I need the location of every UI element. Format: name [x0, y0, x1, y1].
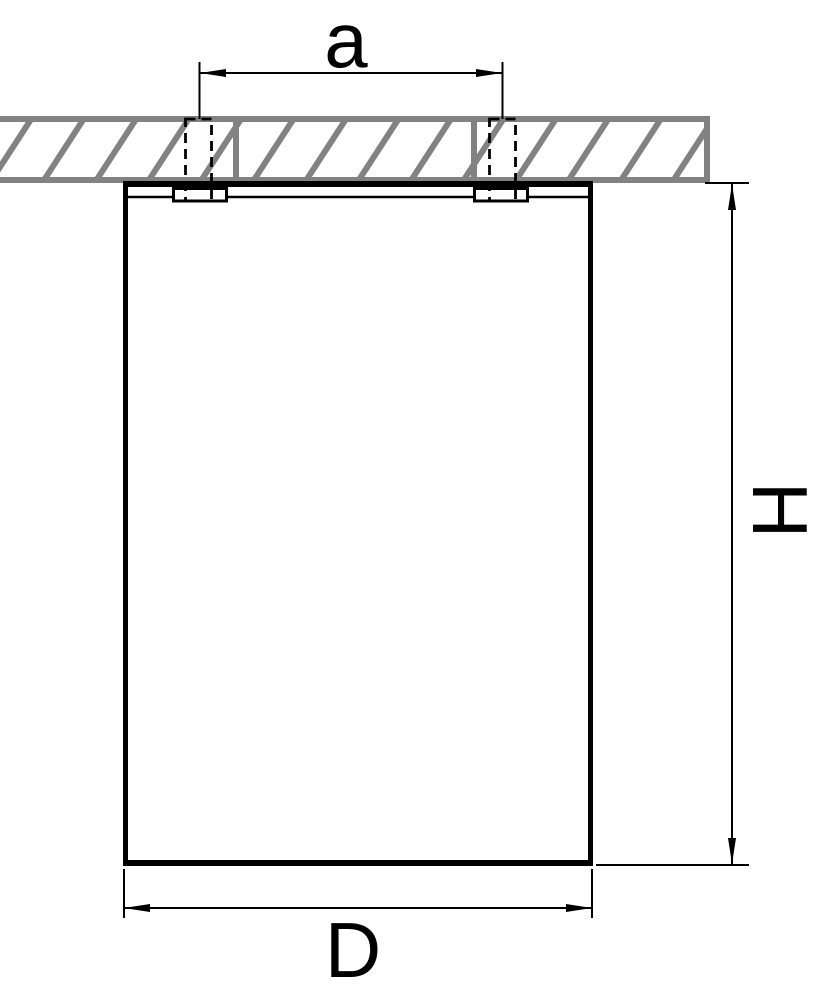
body-right-wall — [588, 181, 593, 866]
dimension-a: a — [200, 0, 503, 119]
dim-a-label: a — [324, 0, 368, 84]
ceiling-top-border — [0, 116, 710, 122]
dim-d-arrow-left — [124, 904, 150, 912]
dim-d-arrow-right — [566, 904, 592, 912]
luminaire-body — [123, 181, 593, 866]
dim-a-arrow-left — [200, 69, 226, 77]
luminaire-dimension-drawing: a H D — [0, 0, 816, 1000]
body-top-plate — [123, 181, 593, 187]
ceiling-divider-left — [233, 116, 239, 183]
ceiling-divider-right — [471, 116, 477, 183]
dim-h-label: H — [736, 482, 816, 538]
ceiling-section — [0, 116, 710, 183]
dim-d-label: D — [325, 906, 381, 994]
ceiling-hatch-area — [0, 122, 710, 177]
dim-h-arrow-top — [728, 184, 736, 210]
mounting-tab-left — [174, 189, 227, 202]
dimension-h: H — [596, 183, 816, 865]
body-interior — [123, 181, 593, 866]
body-bottom-edge — [123, 860, 593, 866]
mounting-tab-right — [475, 189, 528, 202]
dimension-drawing-page: a H D — [0, 0, 816, 1000]
ceiling-right-end-cap — [704, 116, 710, 183]
dim-h-arrow-bottom — [728, 838, 736, 864]
dimension-d: D — [124, 869, 592, 994]
dim-a-arrow-right — [476, 69, 502, 77]
body-left-wall — [123, 181, 128, 866]
